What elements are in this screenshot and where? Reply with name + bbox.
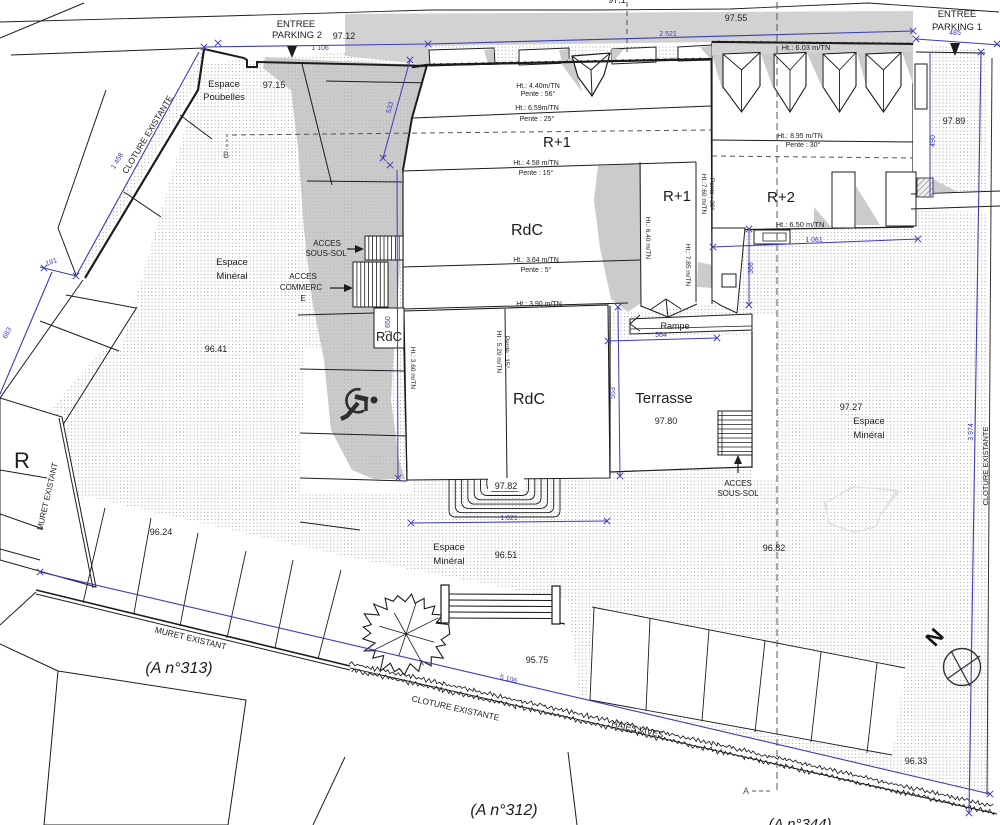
svg-text:R+1: R+1 xyxy=(663,188,691,205)
svg-text:ACCES: ACCES xyxy=(313,239,341,248)
svg-text:SOUS-SOL: SOUS-SOL xyxy=(305,249,347,258)
svg-text:97.15: 97.15 xyxy=(263,80,286,90)
svg-text:Espace: Espace xyxy=(208,79,240,90)
svg-text:R+1: R+1 xyxy=(543,134,571,151)
svg-text:Ht.: 3.64 m/TN: Ht.: 3.64 m/TN xyxy=(513,257,559,264)
svg-text:Espace: Espace xyxy=(853,416,885,427)
svg-text:A: A xyxy=(743,786,749,796)
svg-text:Ht.: 4.40m/TN: Ht.: 4.40m/TN xyxy=(516,83,560,90)
svg-text:96.33: 96.33 xyxy=(905,756,928,766)
svg-text:SOUS-SOL: SOUS-SOL xyxy=(717,489,759,498)
svg-text:97.12: 97.12 xyxy=(333,31,356,41)
svg-text:1 021: 1 021 xyxy=(500,515,518,522)
svg-text:Ht.: 6.50 m/TN: Ht.: 6.50 m/TN xyxy=(776,220,825,229)
svg-text:Ht.: 8.95 m/TN: Ht.: 8.95 m/TN xyxy=(777,133,823,140)
svg-text:PARKING 2: PARKING 2 xyxy=(272,30,322,41)
svg-text:97.80: 97.80 xyxy=(655,416,678,426)
svg-text:E: E xyxy=(300,294,305,303)
svg-text:553: 553 xyxy=(610,387,617,399)
svg-text:Pente : 5°: Pente : 5° xyxy=(521,266,552,274)
svg-text:B: B xyxy=(223,150,229,160)
svg-text:ENTREE: ENTREE xyxy=(938,9,977,20)
svg-text:ACCES: ACCES xyxy=(289,272,317,281)
svg-text:Ht : 5.29 m/TN: Ht : 5.29 m/TN xyxy=(495,331,502,374)
svg-text:Pente : 15°: Pente : 15° xyxy=(519,169,554,177)
svg-text:CLOTURE EXISTANTE: CLOTURE EXISTANTE xyxy=(981,426,990,505)
svg-text:Pente : 56°: Pente : 56° xyxy=(521,90,556,98)
svg-text:1 106: 1 106 xyxy=(311,45,329,52)
svg-text:97.82: 97.82 xyxy=(495,481,518,491)
svg-text:Pente : 30°: Pente : 30° xyxy=(786,141,821,149)
svg-text:97.1: 97.1 xyxy=(608,0,626,5)
svg-text:2 521: 2 521 xyxy=(659,31,677,38)
svg-text:1 061: 1 061 xyxy=(805,237,823,244)
svg-text:Ht.: 6.40 m/TN: Ht.: 6.40 m/TN xyxy=(644,217,651,260)
svg-text:3 974: 3 974 xyxy=(968,423,975,441)
svg-text:490: 490 xyxy=(930,135,937,147)
svg-text:Minéral: Minéral xyxy=(216,271,247,282)
svg-text:97.55: 97.55 xyxy=(725,13,748,23)
svg-text:Ht.: 4.58 m/TN: Ht.: 4.58 m/TN xyxy=(513,160,559,167)
svg-text:564: 564 xyxy=(655,332,667,339)
svg-text:Ht.: 3.60 m/TN: Ht.: 3.60 m/TN xyxy=(409,347,416,390)
svg-text:Minéral: Minéral xyxy=(433,556,464,567)
svg-text:Espace: Espace xyxy=(216,257,248,268)
svg-text:1 650: 1 650 xyxy=(385,316,392,334)
svg-text:Ht.: 6.03 m/TN: Ht.: 6.03 m/TN xyxy=(782,43,831,52)
svg-text:97.89: 97.89 xyxy=(943,116,966,126)
svg-text:96.41: 96.41 xyxy=(205,344,228,354)
svg-text:368: 368 xyxy=(748,262,755,274)
svg-text:96.82: 96.82 xyxy=(763,543,786,553)
svg-text:(A n°313): (A n°313) xyxy=(145,660,212,677)
svg-text:COMMERC: COMMERC xyxy=(280,283,322,292)
svg-text:Pente : 30°: Pente : 30° xyxy=(708,178,716,211)
svg-text:95.75: 95.75 xyxy=(526,655,549,665)
svg-text:RdC: RdC xyxy=(513,391,545,408)
svg-text:Terrasse: Terrasse xyxy=(635,390,693,407)
svg-text:Pente : 15°: Pente : 15° xyxy=(503,336,511,369)
svg-text:Ht.: 3.90 m/TN: Ht.: 3.90 m/TN xyxy=(516,301,562,308)
svg-text:R+2: R+2 xyxy=(767,189,795,206)
svg-text:Rampe: Rampe xyxy=(660,321,689,331)
svg-text:ACCES: ACCES xyxy=(724,479,752,488)
svg-text:R: R xyxy=(14,448,30,473)
svg-text:Ht.: 7.85 m/TN: Ht.: 7.85 m/TN xyxy=(684,244,691,287)
svg-text:Espace: Espace xyxy=(433,542,465,553)
svg-text:Poubelles: Poubelles xyxy=(203,92,245,103)
svg-text:96.51: 96.51 xyxy=(495,550,518,560)
svg-text:PARKING 1: PARKING 1 xyxy=(932,22,982,33)
svg-text:Pente : 25°: Pente : 25° xyxy=(520,115,555,123)
svg-text:(A n°312): (A n°312) xyxy=(470,802,537,819)
svg-text:97.27: 97.27 xyxy=(840,402,863,412)
svg-text:96.24: 96.24 xyxy=(150,527,173,537)
svg-text:(A n°344): (A n°344) xyxy=(769,816,832,825)
svg-text:Ht.:7.60 m/TN: Ht.:7.60 m/TN xyxy=(700,174,707,215)
svg-text:ENTREE: ENTREE xyxy=(277,19,316,30)
svg-text:RdC: RdC xyxy=(511,222,543,239)
svg-text:Minéral: Minéral xyxy=(853,430,884,441)
svg-text:Ht.: 6.59m/TN: Ht.: 6.59m/TN xyxy=(515,105,559,112)
